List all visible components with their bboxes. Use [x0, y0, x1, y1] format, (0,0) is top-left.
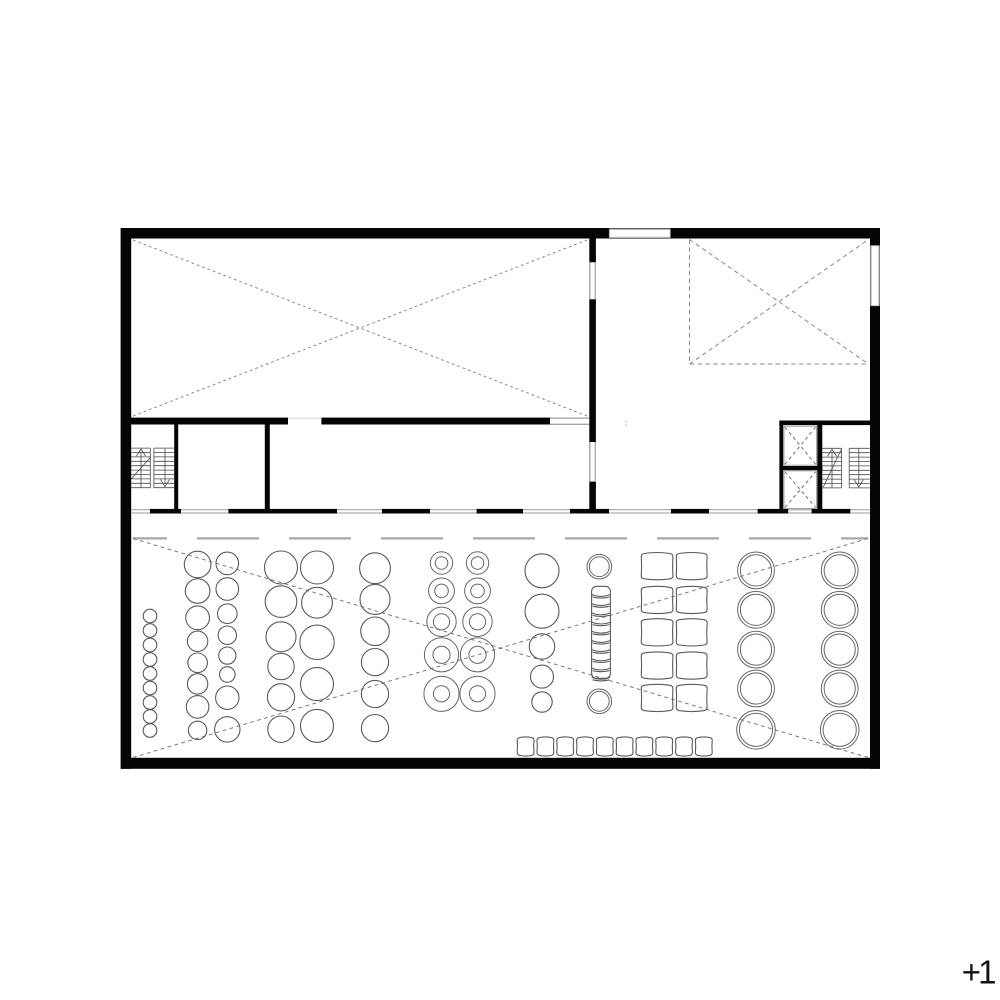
svg-text:+1: +1 — [962, 954, 995, 991]
